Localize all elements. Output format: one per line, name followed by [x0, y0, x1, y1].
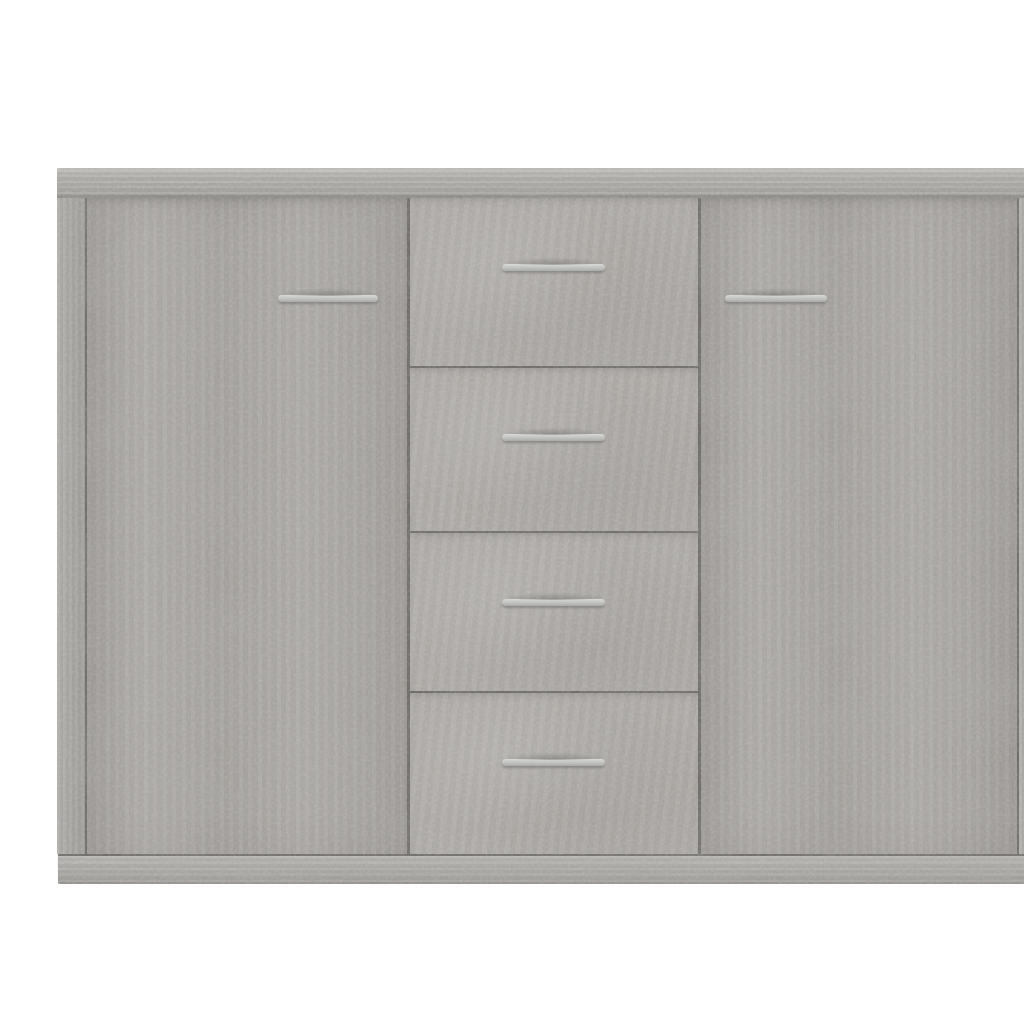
drawer-handle-2	[502, 434, 605, 441]
drawer-front-4	[410, 691, 698, 854]
left-door	[87, 198, 407, 854]
drawer-handle-1	[502, 264, 605, 271]
left-door-handle	[278, 295, 378, 302]
drawer-front-1	[410, 198, 698, 366]
plinth-base	[58, 854, 1024, 884]
left-side-panel	[57, 198, 87, 854]
drawer-handle-4	[502, 759, 605, 766]
drawer-stack	[407, 198, 701, 854]
drawer-handle-3	[502, 599, 605, 606]
right-door-handle	[725, 295, 827, 302]
drawer-front-3	[410, 531, 698, 691]
right-side-panel	[1017, 198, 1024, 854]
drawer-front-2	[410, 366, 698, 531]
sideboard	[57, 168, 1024, 884]
right-door	[701, 198, 1017, 854]
product-photo-canvas	[0, 0, 1024, 1024]
cabinet-body	[57, 198, 1024, 854]
top-panel	[57, 168, 1024, 198]
